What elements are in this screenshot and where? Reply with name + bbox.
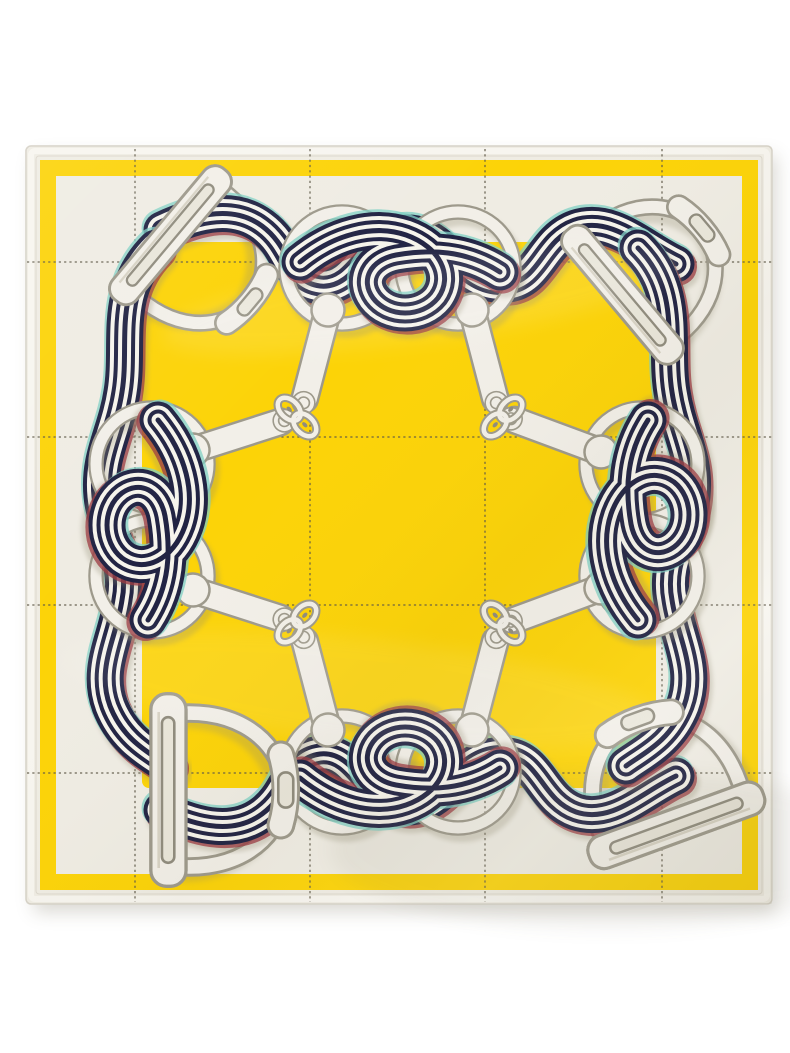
scarf-product-photo bbox=[0, 0, 790, 1053]
scarf bbox=[26, 146, 790, 930]
fabric-sheen bbox=[26, 146, 790, 930]
scarf-photo-svg bbox=[0, 0, 790, 1053]
